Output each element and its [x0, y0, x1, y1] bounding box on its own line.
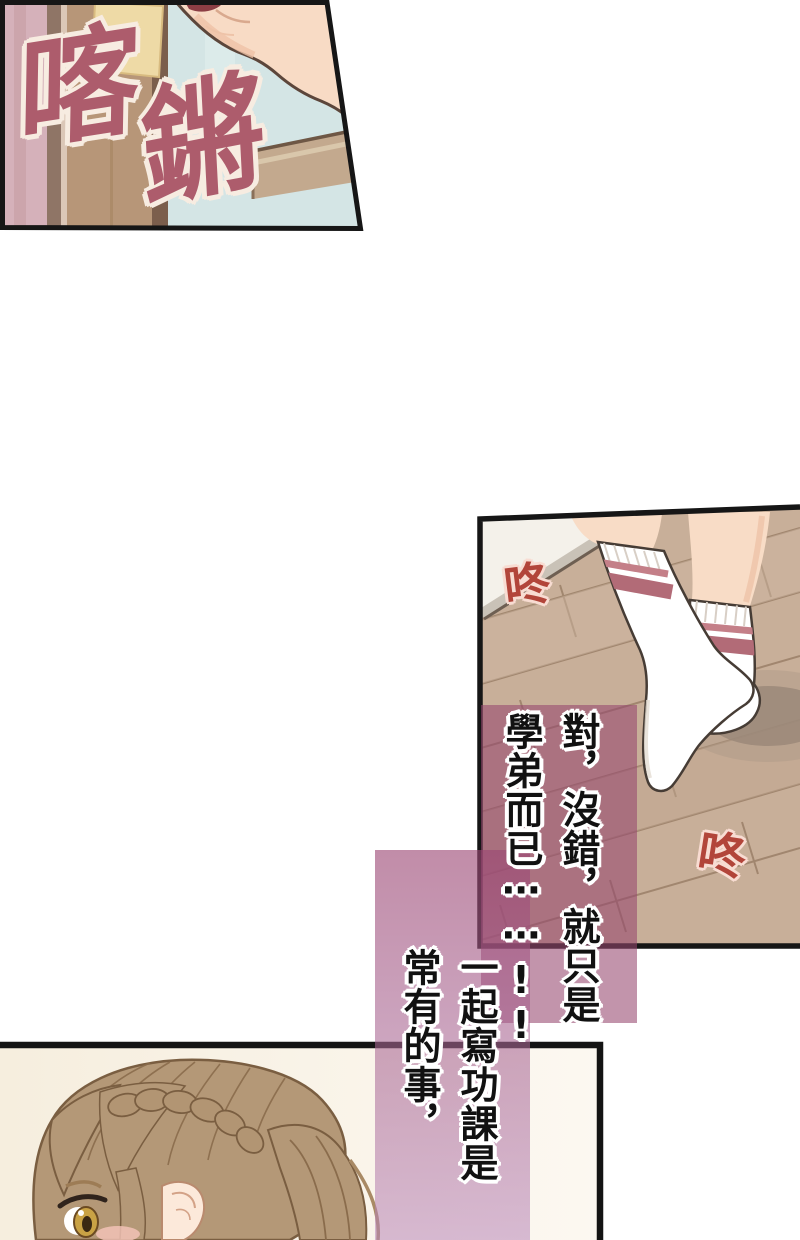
monologue-1-column-right: 對，沒錯，就只是 — [549, 712, 606, 1052]
monologue-2: 一起寫功課是 常有的事， — [390, 948, 504, 1240]
sfx-clack: 喀 — [18, 16, 141, 159]
sfx-clang: 鏘 — [138, 65, 268, 216]
monologue-2-column-right: 一起寫功課是 — [447, 948, 504, 1240]
sfx-thud-2: 咚 — [695, 829, 750, 884]
monologue-1: 對，沒錯，就只是 學弟而已⋯⋯!! — [492, 712, 606, 1052]
sfx-thud-1: 咚 — [501, 559, 552, 610]
monologue-2-column-left: 常有的事， — [390, 948, 447, 1240]
comic-page: 喀 鏘 咚 咚 對，沒錯，就只是 學弟而已⋯⋯!! 一起寫功課是 常有的事， — [0, 0, 800, 1240]
